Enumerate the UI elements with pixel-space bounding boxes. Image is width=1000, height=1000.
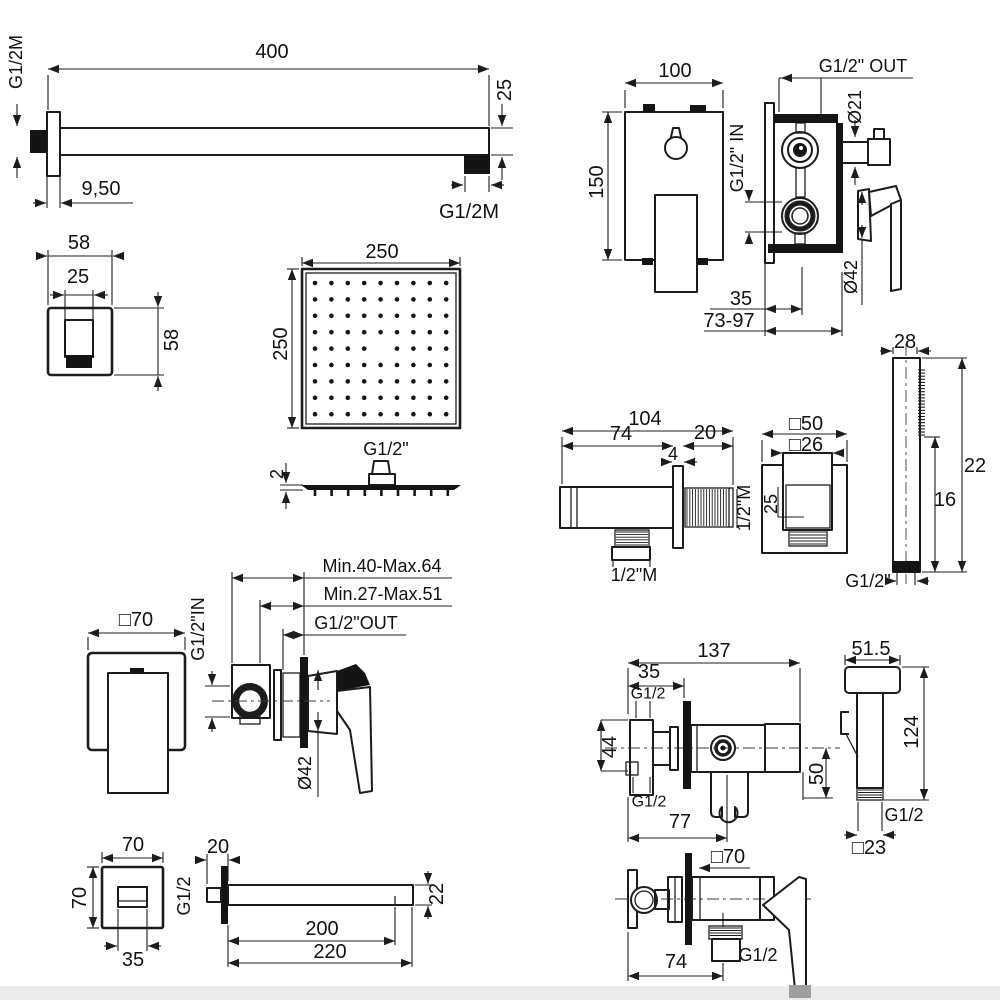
shower-system-dimension-drawing: G1/2M 400 25 9,50 G1/2M 58 25 58	[0, 0, 1000, 1000]
dim-wand-spray-len: 16	[934, 489, 956, 511]
thread-hatch-front	[790, 532, 826, 544]
dim-outlet-face: □50	[789, 413, 823, 435]
dim-mixer3-escutcheon-dia: Ø42	[841, 260, 861, 294]
label-mixer3-outlet: G1/2" OUT	[819, 56, 907, 76]
dim-valve-total: 137	[697, 640, 730, 662]
dim-outlet-thread-len: 20	[694, 422, 716, 444]
lever-end-pad	[789, 985, 811, 998]
label-head-thread: G1/2"	[363, 439, 408, 459]
dim-head-thickness: 2	[267, 469, 287, 479]
dim-wand-length: 22	[964, 455, 986, 477]
dim-wand-dia: 28	[894, 331, 916, 353]
dim-outlet-body: 74	[610, 423, 632, 445]
side-nozzle-teeth	[315, 490, 448, 496]
label-mixer1-inlet: G1/2"IN	[188, 597, 208, 660]
label-valve-thread-bottom: G1/2	[632, 794, 667, 811]
wall-flange-view: 58 25 58	[36, 232, 183, 391]
dim-mixer1-range1: Min.40-Max.64	[322, 556, 441, 576]
hand-shower-view: 28 22 16 G1/2"	[845, 331, 986, 591]
dim-spout-len220: 220	[313, 941, 346, 963]
dim-valve-drop: 50	[806, 763, 828, 785]
dim-valve-holder-x: 77	[669, 811, 691, 833]
thread-hatch-side	[687, 489, 726, 526]
dim-spout-height: 70	[69, 887, 91, 909]
dim-mixer1-range2: Min.27-Max.51	[323, 584, 442, 604]
dim-flange-width: 58	[68, 232, 90, 254]
label-valve-thread-top: G1/2	[631, 686, 666, 703]
dim-arm-end-thread: G1/2M	[439, 201, 499, 223]
angle-valve-holder-view: 137 35 G1/2 44 G1/2 77 50	[599, 640, 840, 842]
label-outlet-thread-side: 1/2"M	[734, 485, 754, 531]
dim-mixer3-depth-range: 73-97	[703, 310, 754, 332]
dim-valve-inlet-h: 44	[599, 736, 621, 758]
sprayer-thread-hatch	[858, 790, 882, 798]
dim-outlet-total: 104	[628, 408, 661, 430]
label-mixer2-thread: G1/2	[738, 945, 777, 965]
shower-arm-view: G1/2M 400 25 9,50 G1/2M	[6, 35, 516, 223]
dim-mixer1-face: □70	[119, 609, 153, 631]
thread-hatch-bottom	[616, 532, 648, 545]
dim-mixer2-outlet-x: 74	[665, 951, 687, 973]
dim-spout-inner: 35	[122, 949, 144, 971]
dim-mixer3-depth35: 35	[730, 288, 752, 310]
dim-flange-height: 58	[161, 329, 183, 351]
dim-arm-height: 25	[494, 79, 516, 101]
dim-mixer3-height: 150	[586, 165, 608, 198]
exposed-mixer-view: □70 74 G1/2	[615, 846, 812, 998]
dim-spout-len200: 200	[305, 918, 338, 940]
dim-outlet-inner-h: 25	[761, 494, 781, 514]
shower-head-view: 250 250 G1/2" 2	[267, 241, 461, 509]
nozzle-dot-grid	[313, 281, 449, 417]
dim-flange-inner: 25	[67, 266, 89, 288]
concealed-diverter-mixer-view: 100 150 G1/2" OUT G1/2" IN Ø21 Ø42 35 73…	[586, 56, 913, 336]
dim-mixer1-escutcheon-dia: Ø42	[295, 756, 315, 790]
label-outlet-thread-bottom: 1/2"M	[611, 565, 657, 585]
dim-sprayer-width: 51.5	[852, 638, 891, 660]
dim-outlet-flange: 4	[668, 444, 678, 464]
label-mixer1-outlet: G1/2"OUT	[314, 613, 397, 633]
dim-head-width: 250	[365, 241, 398, 263]
dim-spout-nipple: 20	[207, 836, 229, 858]
wall-spout-view: 70 70 35 20 G1/2 200 220 22	[69, 834, 448, 971]
dim-mixer3-width: 100	[658, 60, 691, 82]
wall-outlet-view: 104 74 20 4 1/2"M 1/2"M □50 □26 25	[560, 408, 847, 585]
label-mixer3-inlet: G1/2" IN	[727, 124, 747, 192]
technical-drawing-sheet: G1/2M 400 25 9,50 G1/2M 58 25 58	[0, 0, 1000, 1000]
dim-sprayer-height: 124	[901, 715, 923, 748]
dim-arm-flange-offset: 9,50	[82, 178, 121, 200]
dim-arm-wall-thread: G1/2M	[6, 35, 26, 89]
dim-spout-width: 70	[122, 834, 144, 856]
dim-outlet-inner: □26	[789, 434, 823, 456]
mixer2-outlet-hatch	[710, 928, 741, 936]
label-wand-thread: G1/2"	[845, 571, 890, 591]
dim-spout-bar-height: 22	[426, 883, 448, 905]
concealed-single-mixer-view: □70 Min.40-Max.64 Min.27-Max.51 G1/2"OUT…	[88, 556, 452, 797]
dim-mixer2-face: □70	[711, 846, 745, 868]
dim-head-height: 250	[270, 327, 292, 360]
dim-mixer3-connector-dia: Ø21	[845, 90, 865, 124]
dim-arm-length: 400	[255, 41, 288, 63]
label-spout-thread: G1/2	[174, 876, 194, 915]
dim-sprayer-base: □23	[852, 837, 886, 859]
bidet-sprayer-view: 51.5 124 G1/2 □23	[841, 638, 929, 859]
dim-valve-offset: 35	[638, 661, 660, 683]
page-bottom-band	[0, 986, 1000, 1000]
label-sprayer-thread: G1/2	[884, 805, 923, 825]
